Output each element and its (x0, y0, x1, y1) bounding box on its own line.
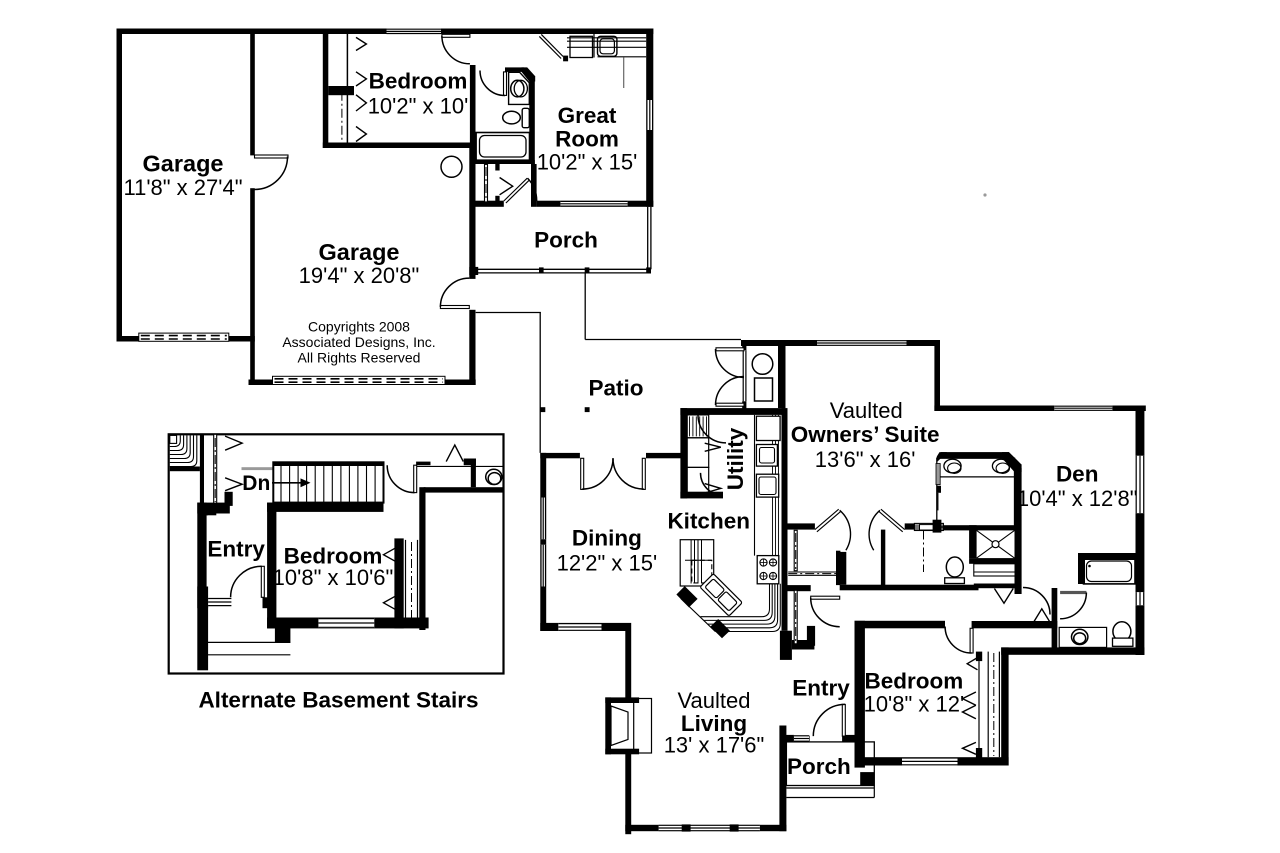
svg-text:Associated Designs, Inc.: Associated Designs, Inc. (282, 334, 435, 350)
svg-text:Owners’ Suite: Owners’ Suite (791, 422, 940, 447)
svg-text:Copyrights 2008: Copyrights 2008 (308, 318, 410, 334)
svg-text:Room: Room (555, 127, 619, 152)
svg-text:12'2" x 15': 12'2" x 15' (557, 550, 658, 575)
svg-text:All Rights Reserved: All Rights Reserved (298, 350, 421, 366)
svg-text:Kitchen: Kitchen (667, 509, 750, 534)
svg-text:Patio: Patio (588, 376, 643, 401)
svg-text:10'8" x 12': 10'8" x 12' (864, 692, 965, 717)
svg-text:Bedroom: Bedroom (369, 69, 468, 94)
svg-text:Dining: Dining (572, 525, 642, 550)
svg-text:Great: Great (558, 103, 617, 128)
svg-text:Bedroom: Bedroom (865, 669, 964, 694)
svg-text:19'4" x 20'8": 19'4" x 20'8" (299, 263, 420, 288)
svg-text:11'8" x 27'4": 11'8" x 27'4" (123, 175, 242, 200)
svg-text:10'2" x 10': 10'2" x 10' (368, 94, 469, 119)
svg-text:Garage: Garage (143, 151, 224, 177)
svg-text:Entry: Entry (207, 537, 265, 562)
svg-text:Porch: Porch (534, 228, 598, 253)
svg-text:Alternate Basement Stairs: Alternate Basement Stairs (198, 688, 478, 713)
svg-text:Dn: Dn (242, 472, 270, 495)
svg-text:13' x 17'6": 13' x 17'6" (664, 733, 765, 758)
svg-text:Porch: Porch (787, 754, 851, 779)
svg-text:10'2" x 15': 10'2" x 15' (537, 150, 638, 175)
svg-text:13'6" x 16': 13'6" x 16' (815, 447, 916, 472)
svg-text:10'4" x 12'8": 10'4" x 12'8" (1017, 486, 1138, 511)
svg-text:Vaulted: Vaulted (678, 688, 751, 713)
svg-text:Entry: Entry (792, 676, 850, 701)
svg-text:10'8" x 10'6": 10'8" x 10'6" (273, 565, 394, 590)
svg-text:Garage: Garage (319, 239, 400, 265)
svg-text:Den: Den (1056, 462, 1099, 487)
svg-text:Utility: Utility (723, 427, 748, 490)
svg-text:Vaulted: Vaulted (830, 398, 903, 423)
